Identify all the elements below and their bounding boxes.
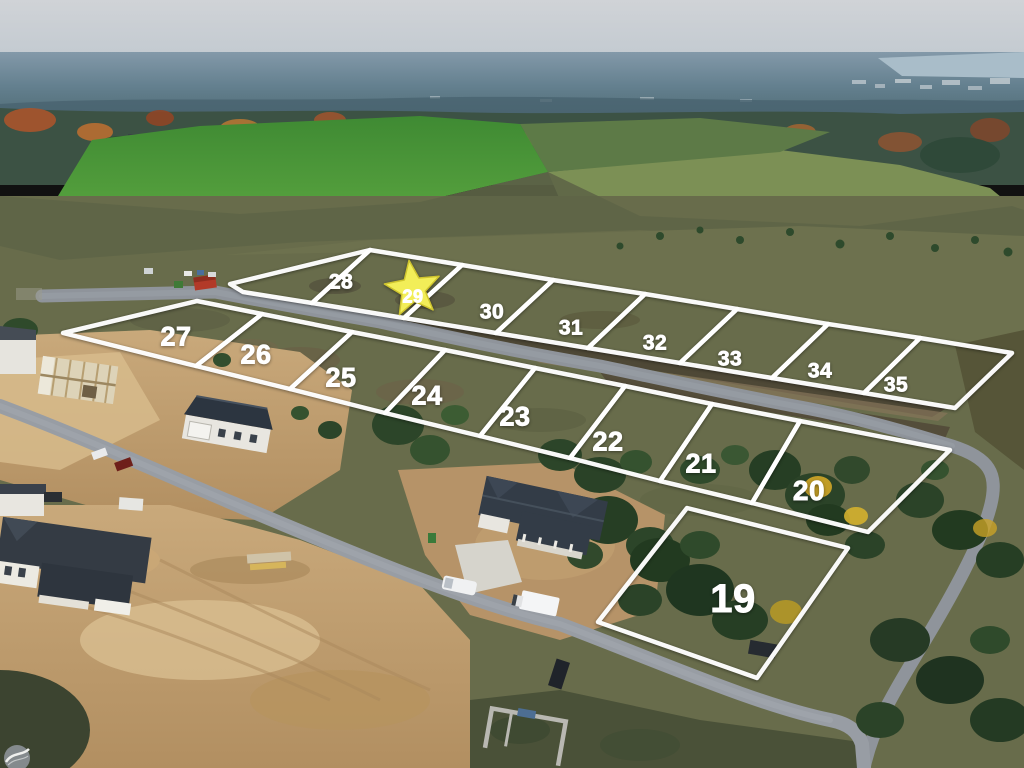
aerial-photo: 2829303132333435272625242322212019 xyxy=(0,0,1024,768)
lot-20-label: 20 xyxy=(793,475,825,506)
lot-29-label: 29 xyxy=(402,286,423,306)
lot-35-label: 35 xyxy=(884,373,908,396)
porta-potty xyxy=(428,533,436,543)
road-end xyxy=(16,288,42,300)
lot-21-label: 21 xyxy=(685,448,716,478)
lot-33-label: 33 xyxy=(718,347,742,370)
lot-19-label: 19 xyxy=(710,577,756,621)
lot-26-label: 26 xyxy=(240,339,271,369)
lot-24-label: 24 xyxy=(411,380,442,410)
white-trailer xyxy=(119,497,144,511)
aerial-lot-map: 2829303132333435272625242322212019 xyxy=(0,0,1024,768)
lot-22-label: 22 xyxy=(592,426,623,456)
lot-25-label: 25 xyxy=(325,362,356,392)
horizon-layer xyxy=(0,52,1024,120)
lot-23-label: 23 xyxy=(499,401,530,431)
dark-van xyxy=(44,492,62,502)
lot-34-label: 34 xyxy=(808,359,832,382)
green-tractor xyxy=(174,281,183,288)
lot-27-label: 27 xyxy=(160,321,191,351)
lot-32-label: 32 xyxy=(643,331,667,354)
lot-30-label: 30 xyxy=(480,300,504,323)
lot-28-label: 28 xyxy=(329,270,353,293)
lot-31-label: 31 xyxy=(559,316,583,339)
